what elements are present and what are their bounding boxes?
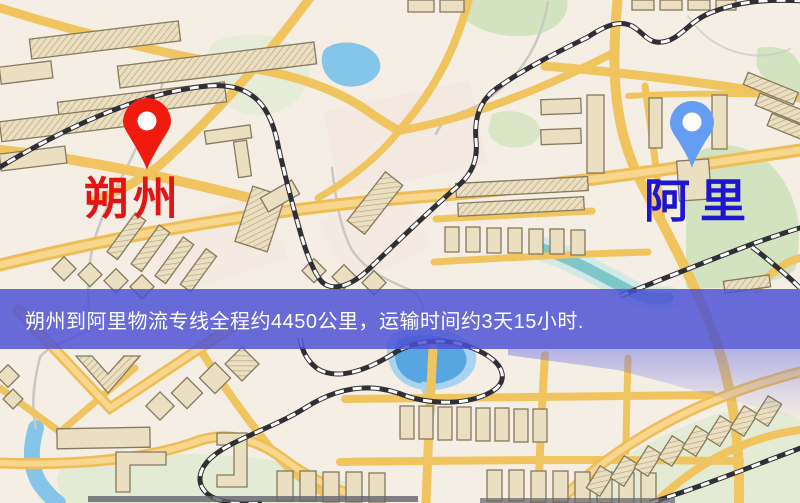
- pin-body: [670, 101, 714, 168]
- destination-city-label: 阿里: [644, 178, 756, 224]
- building: [529, 229, 543, 254]
- origin-pin-icon[interactable]: [119, 97, 175, 171]
- building: [587, 95, 604, 173]
- building: [514, 409, 528, 442]
- dark-row: [88, 496, 418, 502]
- route-info-text: 朔州到阿里物流专线全程约4450公里，运输时间约3天15小时.: [25, 305, 584, 334]
- building: [466, 227, 480, 252]
- building: [660, 0, 682, 10]
- building: [57, 427, 150, 449]
- building: [553, 471, 568, 502]
- building: [649, 98, 662, 148]
- destination-pin-icon[interactable]: [667, 99, 717, 169]
- pin-body: [123, 98, 171, 170]
- road: [340, 460, 740, 462]
- map-canvas[interactable]: [0, 0, 800, 503]
- pin-hole: [683, 113, 702, 132]
- building: [487, 228, 501, 253]
- building: [541, 98, 581, 114]
- building: [419, 406, 433, 439]
- building: [400, 406, 414, 439]
- logistics-map-screenshot: 朔州到阿里物流专线全程约4450公里，运输时间约3天15小时. 朔州 阿里: [0, 0, 800, 503]
- building: [440, 0, 464, 12]
- building: [476, 408, 490, 441]
- building: [688, 0, 710, 10]
- building: [550, 229, 564, 254]
- building: [509, 470, 524, 501]
- building: [533, 409, 547, 442]
- building: [508, 228, 522, 253]
- building: [438, 407, 452, 440]
- building: [541, 128, 581, 144]
- building: [445, 227, 459, 252]
- road: [626, 358, 628, 452]
- building: [495, 408, 509, 441]
- building: [408, 0, 434, 12]
- building: [457, 407, 471, 440]
- building: [531, 471, 546, 502]
- pin-hole: [138, 112, 157, 131]
- dark-row: [480, 498, 675, 503]
- building: [571, 230, 585, 255]
- building: [632, 0, 654, 10]
- building: [487, 470, 502, 501]
- origin-city-label: 朔州: [84, 177, 182, 222]
- route-info-banner: 朔州到阿里物流专线全程约4450公里，运输时间约3天15小时.: [0, 289, 800, 349]
